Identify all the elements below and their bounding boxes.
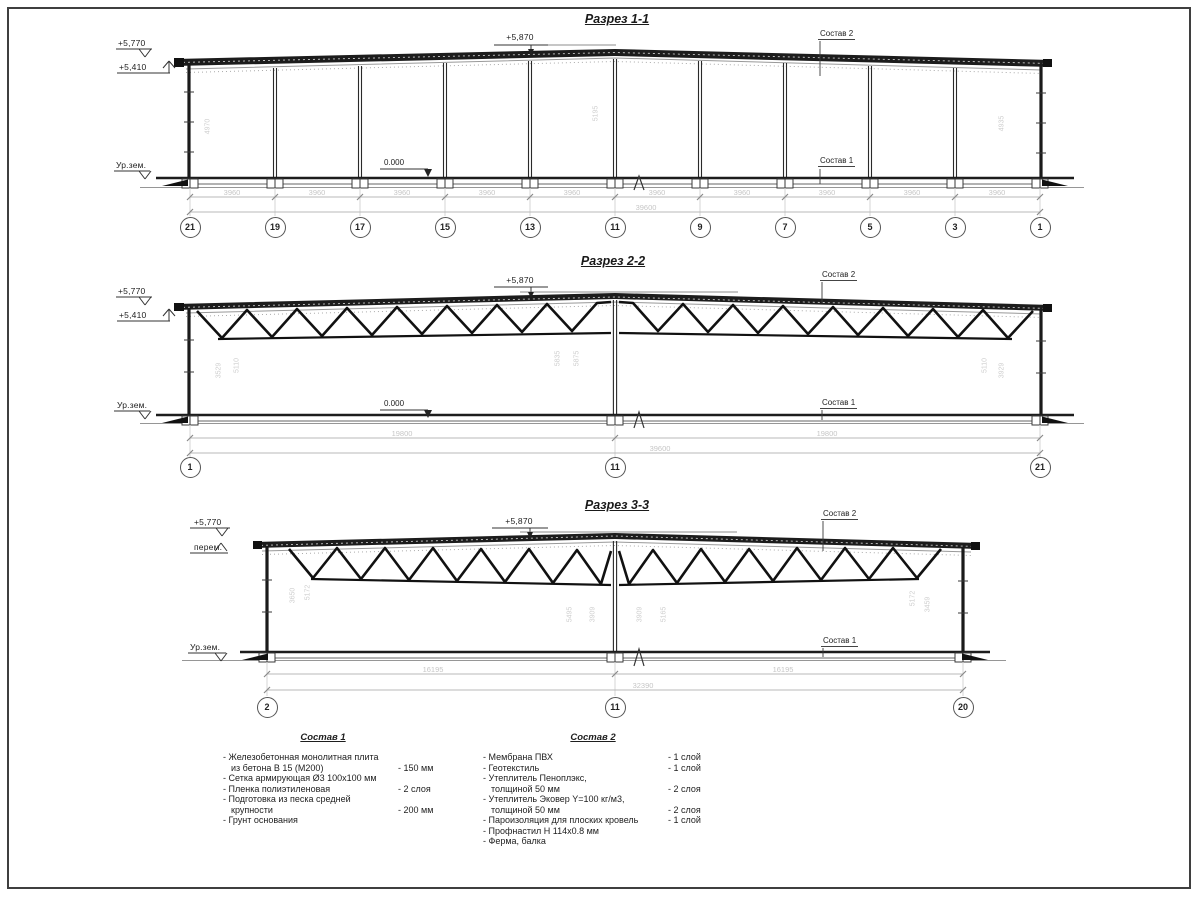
legend-layer2: Состав 2 - Мембрана ПВХ- 1 слой - Геотек… [483,732,728,847]
grid-axis-bubble: 13 [520,217,541,238]
material-qty [398,815,458,826]
material-qty: - 150 мм [398,763,458,774]
s1-bay-dim: 3960 [309,188,326,197]
s1-bay-dim: 3960 [479,188,496,197]
material-name: - Мембрана ПВХ [483,752,668,763]
grid-axis-bubble: 20 [953,697,974,718]
s1-bay-dim: 3960 [394,188,411,197]
s1-elevation-eave: +5,770 [118,38,145,48]
s3-vertical-dim: 5172 [305,575,312,611]
s3-vertical-dim: 3909 [590,597,597,633]
material-name: из бетона В 15 (М200) [223,763,398,774]
legend-row: из бетона В 15 (М200)- 150 мм [223,763,458,774]
s3-span-dim: 16195 [423,665,444,674]
axis-number: 13 [525,222,535,232]
s2-elevation-eave: +5,770 [118,286,145,296]
material-qty [668,836,728,847]
s2-vertical-dim: 5110 [234,348,241,384]
axis-number: 21 [1035,462,1045,472]
material-name: толщиной 50 мм [483,784,668,795]
material-qty [668,794,728,805]
grid-axis-bubble: 21 [180,217,201,238]
material-name: - Пленка полиэтиленовая [223,784,398,795]
s3-vertical-dim: 5165 [661,597,668,633]
legend-row: толщиной 50 мм- 2 слоя [483,805,728,816]
legend-row: толщиной 50 мм- 2 слоя [483,784,728,795]
grid-axis-bubble: 11 [605,217,626,238]
axis-number: 1 [187,462,192,472]
axis-number: 19 [270,222,280,232]
legend-row: - Подготовка из песка средней [223,794,458,805]
grid-axis-bubble: 17 [350,217,371,238]
material-qty [398,752,458,763]
material-name: - Сетка армирующая Ø3 100х100 мм [223,773,398,784]
drawing-sheet: Разрез 1-1 +5,770 +5,410 +5,870 Ур.зем. … [0,0,1200,900]
material-name: - Железобетонная монолитная плита [223,752,398,763]
s1-vertical-dim: 4935 [999,106,1006,142]
grid-axis-bubble: 11 [605,697,626,718]
s2-ground-level-label: Ур.зем. [117,400,147,410]
s2-vertical-dim: 3529 [216,353,223,389]
material-name: толщиной 50 мм [483,805,668,816]
material-qty: - 2 слоя [398,784,458,795]
s1-bay-dim: 3960 [989,188,1006,197]
material-name: крупности [223,805,398,816]
legend-row: - Утеплитель Эковер Y=100 кг/м3, [483,794,728,805]
s1-bay-dim: 3960 [819,188,836,197]
grid-axis-bubble: 21 [1030,457,1051,478]
legend-row: - Мембрана ПВХ- 1 слой [483,752,728,763]
axis-number: 11 [610,222,620,232]
material-name: - Профнастил Н 114х0.8 мм [483,826,668,837]
s2-vertical-dim: 5875 [574,341,581,377]
material-qty: - 200 мм [398,805,458,816]
material-name: - Геотекстиль [483,763,668,774]
legend-row: - Пленка полиэтиленовая- 2 слоя [223,784,458,795]
s2-elevation-ridge: +5,870 [506,275,533,285]
s1-vertical-dim: 4970 [205,109,212,145]
s1-elevation-soffit: +5,410 [119,62,146,72]
s2-layer2-callout: Состав 2 [820,270,857,281]
material-qty [398,773,458,784]
s1-bay-dim: 3960 [564,188,581,197]
s1-layer1-callout: Состав 1 [818,156,855,167]
grid-axis-bubble: 7 [775,217,796,238]
legend-row: - Геотекстиль- 1 слой [483,763,728,774]
s1-bay-dim: 3960 [224,188,241,197]
legend-row: - Ферма, балка [483,836,728,847]
s2-elevation-soffit: +5,410 [119,310,146,320]
material-qty [398,794,458,805]
s3-span-dim: 16195 [773,665,794,674]
s1-bay-dim: 3960 [734,188,751,197]
s1-total-dim: 39600 [636,203,657,212]
grid-axis-bubble: 1 [1030,217,1051,238]
section-2-title: Разрез 2-2 [581,254,645,268]
s3-layer1-callout: Состав 1 [821,636,858,647]
s2-vertical-dim: 5835 [555,341,562,377]
axis-number: 1 [1037,222,1042,232]
material-name: - Подготовка из песка средней [223,794,398,805]
material-qty: - 1 слой [668,815,728,826]
legend-layer2-title: Состав 2 [518,732,668,743]
axis-number: 2 [264,702,269,712]
grid-axis-bubble: 9 [690,217,711,238]
material-qty: - 2 слоя [668,805,728,816]
material-qty [668,773,728,784]
s1-vertical-dim: 5195 [593,96,600,132]
axis-number: 15 [440,222,450,232]
material-qty: - 1 слой [668,763,728,774]
legend-layer1: Состав 1 - Железобетонная монолитная пли… [223,732,458,826]
legend-row: - Профнастил Н 114х0.8 мм [483,826,728,837]
s3-layer2-callout: Состав 2 [821,509,858,520]
s1-bay-dim: 3960 [649,188,666,197]
s3-vertical-dim: 5172 [910,581,917,617]
grid-axis-bubble: 3 [945,217,966,238]
axis-number: 3 [952,222,957,232]
s3-vertical-dim: 3909 [637,597,644,633]
legend-row: - Грунт основания [223,815,458,826]
legend-row: - Пароизоляция для плоских кровель- 1 сл… [483,815,728,826]
axis-number: 17 [355,222,365,232]
axis-number: 11 [610,702,620,712]
material-name: - Утеплитель Эковер Y=100 кг/м3, [483,794,668,805]
grid-axis-bubble: 5 [860,217,881,238]
material-name: - Пароизоляция для плоских кровель [483,815,668,826]
s1-ground-level-label: Ур.зем. [116,160,146,170]
legend-row: - Железобетонная монолитная плита [223,752,458,763]
s1-layer2-callout: Состав 2 [818,29,855,40]
section-1-title: Разрез 1-1 [585,12,649,26]
legend-layer1-title: Состав 1 [248,732,398,743]
s3-vertical-dim: 3650 [290,578,297,614]
legend-row: - Утеплитель Пеноплэкс, [483,773,728,784]
legend-row: - Сетка армирующая Ø3 100х100 мм [223,773,458,784]
s3-vertical-dim: 5495 [567,597,574,633]
axis-number: 5 [867,222,872,232]
s2-vertical-dim: 5110 [982,348,989,384]
s1-zero-mark: 0.000 [384,158,404,167]
axis-number: 9 [697,222,702,232]
material-qty [668,826,728,837]
material-name: - Ферма, балка [483,836,668,847]
section-3-title: Разрез 3-3 [585,498,649,512]
grid-axis-bubble: 11 [605,457,626,478]
grid-axis-bubble: 2 [257,697,278,718]
s3-elevation-eave: +5,770 [194,517,221,527]
axis-number: 20 [958,702,968,712]
grid-axis-bubble: 15 [435,217,456,238]
s1-elevation-ridge: +5,870 [506,32,533,42]
material-qty: - 1 слой [668,752,728,763]
s3-ground-level-label: Ур.зем. [190,642,220,652]
material-name: - Грунт основания [223,815,398,826]
s2-span-dim: 19800 [392,429,413,438]
s2-span-dim: 19800 [817,429,838,438]
s2-zero-mark: 0.000 [384,399,404,408]
material-name: - Утеплитель Пеноплэкс, [483,773,668,784]
material-qty: - 2 слоя [668,784,728,795]
section-2-linework [114,282,1084,457]
s3-elevation-ridge: +5,870 [505,516,532,526]
grid-axis-bubble: 19 [265,217,286,238]
s3-vertical-dim: 3459 [925,587,932,623]
s2-layer1-callout: Состав 1 [820,398,857,409]
axis-number: 11 [610,462,620,472]
s2-vertical-dim: 3929 [999,353,1006,389]
s3-total-dim: 32390 [633,681,654,690]
axis-number: 7 [782,222,787,232]
s1-bay-dim: 3960 [904,188,921,197]
legend-row: крупности- 200 мм [223,805,458,816]
s3-elevation-variable: перем. [194,542,222,552]
s2-total-dim: 39600 [650,444,671,453]
axis-number: 21 [185,222,195,232]
grid-axis-bubble: 1 [180,457,201,478]
